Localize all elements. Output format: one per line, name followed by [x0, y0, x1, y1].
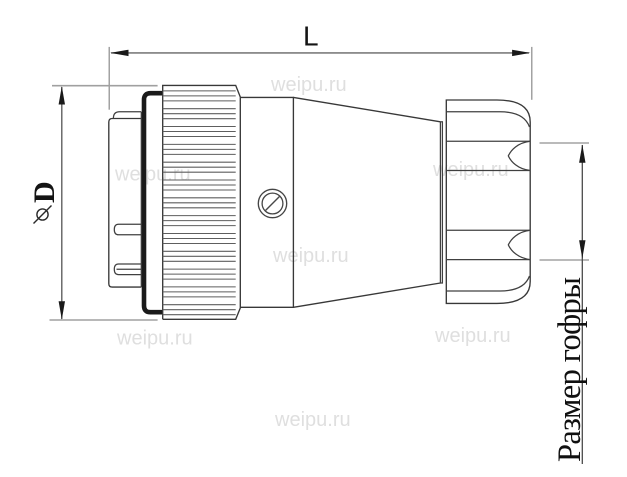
svg-text:Размер гофры: Размер гофры [552, 277, 588, 462]
svg-text:weipu.ru: weipu.ru [116, 328, 193, 350]
svg-text:D: D [28, 181, 61, 203]
svg-text:weipu.ru: weipu.ru [270, 74, 347, 96]
svg-text:weipu.ru: weipu.ru [272, 245, 349, 267]
svg-text:weipu.ru: weipu.ru [274, 409, 351, 431]
svg-text:weipu.ru: weipu.ru [434, 325, 511, 347]
svg-text:L: L [303, 21, 319, 52]
